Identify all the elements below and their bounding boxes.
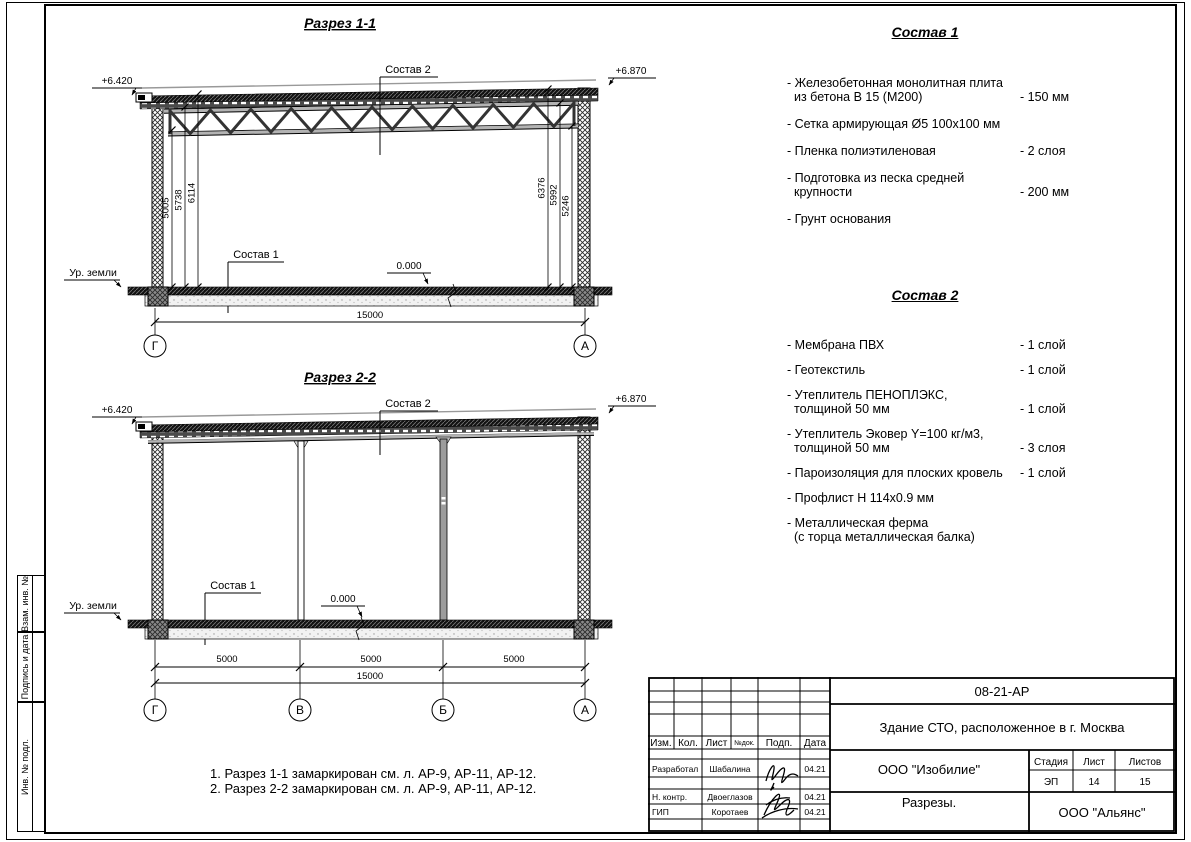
material-item: - Геотекстиль - 1 слой — [787, 363, 1127, 377]
col-izm: Изм. — [650, 738, 671, 749]
title-block: Изм. Кол. Лист №док. Подп. Дата Разработ… — [648, 677, 1175, 832]
ground-label-text: Ур. земли — [69, 600, 117, 612]
axis-letter: А — [581, 339, 589, 353]
sheet-label: Лист — [1083, 757, 1105, 768]
material-name: - Утеплитель Эковер Y=100 кг/м3, — [787, 427, 1020, 441]
callout-sostav2-label: Состав 2 — [385, 398, 431, 410]
ground-level-label: Ур. земли — [64, 267, 121, 287]
dim-bay-1: 5000 — [216, 654, 237, 665]
material-item: - Утеплитель Эковер Y=100 кг/м3, толщино… — [787, 427, 1127, 455]
right-footing — [574, 620, 594, 639]
stage-label: Стадия — [1034, 757, 1068, 768]
note-line-2: 2. Разрез 2-2 замаркирован см. л. АР-9, … — [210, 781, 536, 796]
material-name: - Подготовка из песка средней — [787, 171, 1020, 185]
zero-level-mark: 0.000 — [321, 594, 365, 617]
row-name: Коротаев — [712, 807, 749, 817]
material-name: - Пароизоляция для плоских кровель — [787, 466, 1020, 480]
dim-5005: 5005 — [161, 197, 172, 218]
callout-sostav1-label: Состав 1 — [233, 249, 279, 261]
section-2-2-drawing: Разрез 2-2 +6.420 — [60, 362, 660, 757]
axis-marker-a: А — [574, 335, 596, 357]
bay-dimensions: 5000 5000 5000 15000 — [151, 640, 589, 699]
level-mark-right: +6.870 — [608, 66, 656, 85]
axis-letter: А — [581, 703, 589, 717]
frame-cell-inv: Инв. № подл. — [17, 702, 46, 832]
frame-label-vzam: Взам. инв. № — [20, 576, 30, 632]
left-footing — [148, 287, 168, 306]
roof-edge-box-fill — [138, 424, 145, 429]
axis-marker-b: Б — [432, 699, 454, 721]
dim-bay-2: 5000 — [360, 654, 381, 665]
material-value: - 1 слой — [1020, 402, 1120, 416]
frame-cell-blank-col — [32, 703, 45, 831]
material-name-line2: (с торца металлическая балка) — [787, 530, 1020, 544]
frame-label-inv: Инв. № подл. — [20, 739, 30, 795]
sostav2-list: - Мембрана ПВХ - 1 слой - Геотекстиль - … — [787, 338, 1127, 555]
axis-letter: Г — [152, 339, 159, 353]
dim-total-15000: 15000 — [357, 671, 383, 682]
material-name-line2: крупности — [787, 185, 1020, 199]
roof-edge-box-fill — [138, 95, 145, 100]
zero-level-value: 0.000 — [396, 261, 421, 272]
material-value: - 1 слой — [1020, 363, 1120, 377]
frame-cell-label-col: Инв. № подл. — [18, 703, 32, 831]
row-role: Разработал — [652, 764, 698, 774]
doc-number: 08-21-АР — [975, 684, 1030, 699]
org-name: ООО "Альянс" — [1059, 805, 1146, 820]
material-item: - Пароизоляция для плоских кровель - 1 с… — [787, 466, 1127, 480]
column-axis-v — [294, 441, 308, 620]
row-date: 04.21 — [804, 764, 826, 774]
height-dimensions: 5005 5738 6114 6376 5992 5246 — [161, 86, 576, 291]
sostav1-heading: Состав 1 — [740, 24, 1110, 40]
material-item: - Грунт основания — [787, 212, 1127, 226]
material-item: - Мембрана ПВХ - 1 слой — [787, 338, 1127, 352]
frame-label-podpis: Подпись и дата — [20, 635, 30, 700]
material-name-line2: толщиной 50 мм — [787, 441, 1020, 455]
left-wall — [152, 426, 163, 620]
axis-marker-g: Г — [144, 335, 166, 357]
section-1-1-drawing: Разрез 1-1 +6.420 +6.870 — [60, 10, 660, 365]
col-list: Лист — [706, 738, 728, 749]
frame-cell-label-col: Подпись и дата — [18, 633, 32, 701]
right-wall — [578, 417, 590, 620]
material-name: - Утеплитель ПЕНОПЛЭКС, — [787, 388, 1020, 402]
dim-bay-3: 5000 — [503, 654, 524, 665]
left-wall — [152, 97, 163, 287]
sand-bed-band — [145, 628, 598, 639]
level-right-value: +6.870 — [616, 66, 647, 77]
frame-cell-label-col: Взам. инв. № — [18, 576, 32, 631]
ground-level-label: Ур. земли — [64, 600, 121, 620]
axis-marker-a: А — [574, 699, 596, 721]
material-name: - Мембрана ПВХ — [787, 338, 1020, 352]
row-date: 04.21 — [804, 792, 826, 802]
row-date: 04.21 — [804, 807, 826, 817]
col-data: Дата — [804, 738, 827, 749]
notes: 1. Разрез 1-1 замаркирован см. л. АР-9, … — [210, 766, 536, 796]
axis-letter: В — [296, 703, 304, 717]
dim-6114: 6114 — [187, 183, 198, 203]
sostav2-heading: Состав 2 — [740, 287, 1110, 303]
material-item: - Утеплитель ПЕНОПЛЭКС, толщиной 50 мм -… — [787, 388, 1127, 416]
material-name-line2: из бетона В 15 (М200) — [787, 90, 1020, 104]
material-value: - 200 мм — [1020, 185, 1120, 199]
floor-slab-band — [128, 620, 612, 628]
column-axis-b — [436, 437, 451, 620]
col-kol: Кол. — [678, 738, 698, 749]
section1-title: Разрез 1-1 — [304, 15, 376, 31]
dim-total-15000: 15000 — [357, 310, 383, 321]
col-ndok: №док. — [734, 740, 755, 747]
frame-cell-vzam: Взам. инв. № — [17, 575, 46, 632]
callout-sostav2-label: Состав 2 — [385, 64, 431, 76]
callout-sostav1-label: Состав 1 — [210, 580, 256, 592]
axis-marker-g: Г — [144, 699, 166, 721]
material-name: - Пленка полиэтиленовая — [787, 144, 1020, 158]
zero-level-mark: 0.000 — [387, 261, 431, 284]
sheet-value: 14 — [1088, 777, 1100, 788]
material-value: - 3 слоя — [1020, 441, 1120, 455]
dim-5246: 5246 — [561, 195, 572, 216]
material-item: - Профлист Н 114х0.9 мм — [787, 491, 1127, 505]
level-left-value: +6.420 — [102, 76, 133, 87]
sheets-value: 15 — [1139, 777, 1151, 788]
roof-datum-line — [142, 80, 596, 88]
left-footing — [148, 620, 168, 639]
sostav1-heading-text: Состав 1 — [892, 24, 959, 40]
sand-bed-band — [145, 295, 598, 306]
material-value: - 1 слой — [1020, 338, 1120, 352]
row-role: ГИП — [652, 807, 669, 817]
level-mark-left: +6.420 — [92, 405, 142, 424]
level-right-value: +6.870 — [616, 394, 647, 405]
sostav1-list: - Железобетонная монолитная плита из бет… — [787, 76, 1127, 239]
col-podp: Подп. — [766, 738, 793, 749]
material-name: - Железобетонная монолитная плита — [787, 76, 1020, 90]
level-mark-right: +6.870 — [608, 394, 656, 413]
material-name: - Металлическая ферма — [787, 516, 1020, 530]
material-value: - 150 мм — [1020, 90, 1120, 104]
level-left-value: +6.420 — [102, 405, 133, 416]
material-item: - Сетка армирующая Ø5 100х100 мм — [787, 117, 1127, 131]
frame-cell-blank-col — [32, 633, 45, 701]
floor-slab-band — [128, 287, 612, 295]
sheets-label: Листов — [1129, 757, 1162, 768]
row-name: Двоеглазов — [707, 792, 753, 802]
sostav2-heading-text: Состав 2 — [892, 287, 959, 303]
section2-title: Разрез 2-2 — [304, 369, 376, 385]
stage-value: ЭП — [1044, 777, 1058, 788]
ground-label-text: Ур. земли — [69, 267, 117, 279]
axis-letter: Г — [152, 703, 159, 717]
frame-cell-podpis: Подпись и дата — [17, 632, 46, 702]
company-name: ООО "Изобилие" — [878, 762, 981, 777]
material-name: - Сетка армирующая Ø5 100х100 мм — [787, 117, 1020, 131]
project-title: Здание СТО, расположенное в г. Москва — [880, 720, 1126, 735]
dim-5992: 5992 — [549, 184, 560, 205]
material-value: - 1 слой — [1020, 466, 1120, 480]
drawing-title: Разрезы. — [902, 795, 956, 810]
drawing-sheet: Взам. инв. № Подпись и дата Инв. № подл. — [0, 0, 1191, 842]
row-role: Н. контр. — [652, 792, 687, 802]
roof-datum-line — [142, 409, 596, 417]
axis-letter: Б — [439, 703, 447, 717]
dim-6376: 6376 — [537, 177, 548, 198]
level-mark-left: +6.420 — [92, 76, 142, 95]
material-item: - Пленка полиэтиленовая - 2 слоя — [787, 144, 1127, 158]
material-name: - Грунт основания — [787, 212, 1020, 226]
note-line-1: 1. Разрез 1-1 замаркирован см. л. АР-9, … — [210, 766, 536, 781]
span-dimension: 15000 — [151, 308, 589, 335]
right-footing — [574, 287, 594, 306]
material-value: - 2 слоя — [1020, 144, 1120, 158]
material-name-line2: толщиной 50 мм — [787, 402, 1020, 416]
material-name: - Геотекстиль — [787, 363, 1020, 377]
row-name: Шабалина — [709, 764, 750, 774]
dim-5738: 5738 — [174, 189, 185, 210]
frame-cell-blank-col — [32, 576, 45, 631]
material-item: - Металлическая ферма (с торца металличе… — [787, 516, 1127, 544]
material-item: - Подготовка из песка средней крупности … — [787, 171, 1127, 199]
zero-level-value: 0.000 — [330, 594, 355, 605]
material-item: - Железобетонная монолитная плита из бет… — [787, 76, 1127, 104]
right-wall — [578, 88, 590, 287]
axis-marker-v: В — [289, 699, 311, 721]
material-name: - Профлист Н 114х0.9 мм — [787, 491, 1020, 505]
